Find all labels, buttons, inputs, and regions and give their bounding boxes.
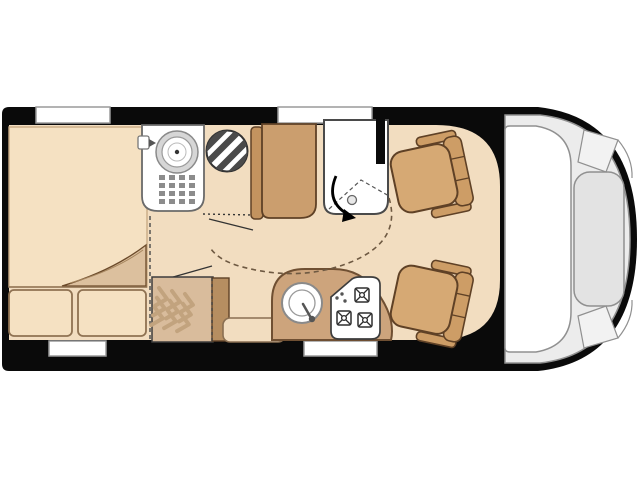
kitchen-faucet-knob — [309, 316, 315, 322]
kitchen-sink-inner — [289, 290, 315, 316]
pillow-left — [9, 290, 72, 336]
window-bottom-rear — [49, 341, 106, 356]
hob-burner-1 — [355, 288, 369, 302]
window-top-rear — [36, 107, 110, 123]
hob-burner-2 — [337, 311, 351, 325]
floorplan-svg: Motorhome floor plan — [0, 0, 640, 480]
b-pillar-wall — [376, 112, 385, 164]
kitchen-window — [304, 341, 377, 356]
bathroom-faucet — [138, 136, 149, 149]
hob-burner-3 — [358, 313, 372, 327]
windshield — [505, 126, 571, 352]
hood-panel — [574, 172, 624, 306]
washbasin-drain-dot — [175, 150, 179, 154]
pillow-right — [78, 290, 146, 336]
bench-seat — [262, 124, 316, 218]
swivel-wall-handle — [348, 196, 357, 205]
floorplan-canvas: Motorhome floor plan — [0, 0, 640, 480]
